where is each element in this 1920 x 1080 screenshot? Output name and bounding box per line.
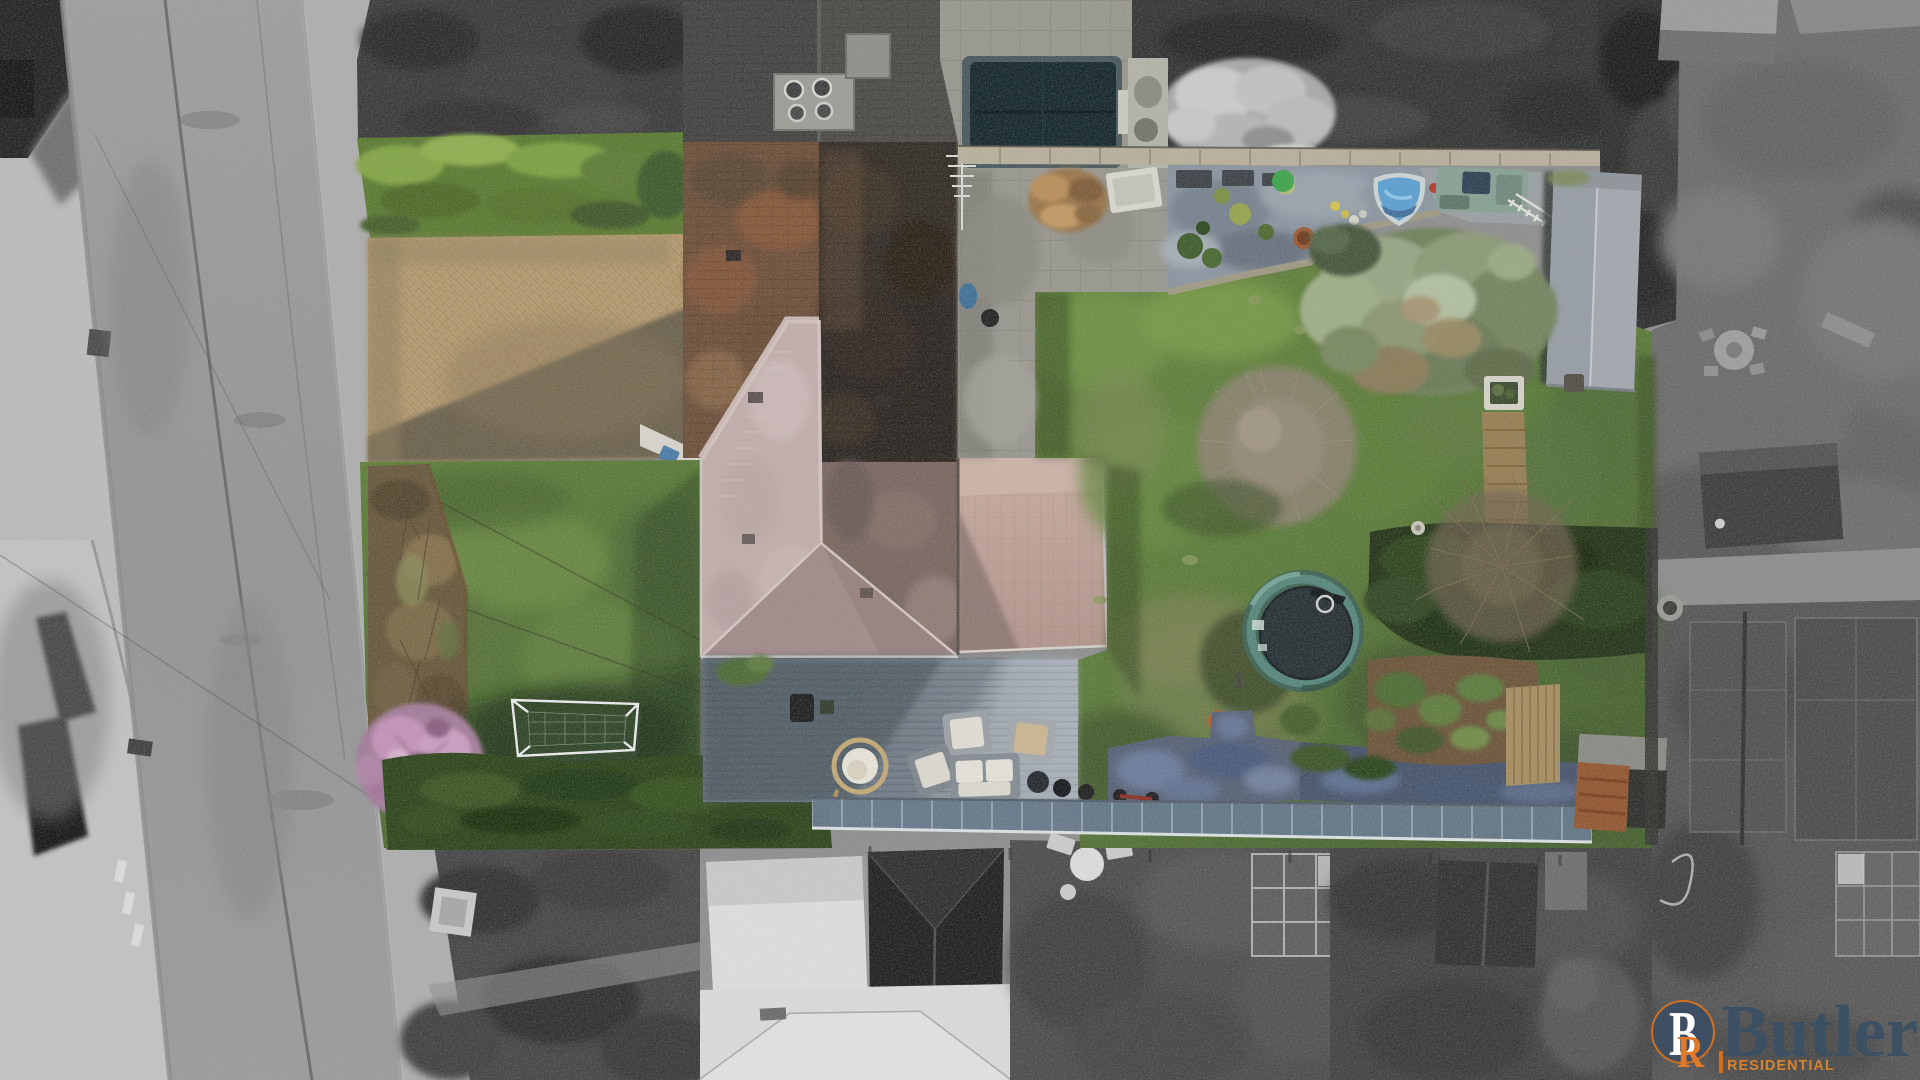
svg-text:R: R: [1677, 1026, 1705, 1077]
svg-text:RESIDENTIAL: RESIDENTIAL: [1727, 1058, 1835, 1074]
